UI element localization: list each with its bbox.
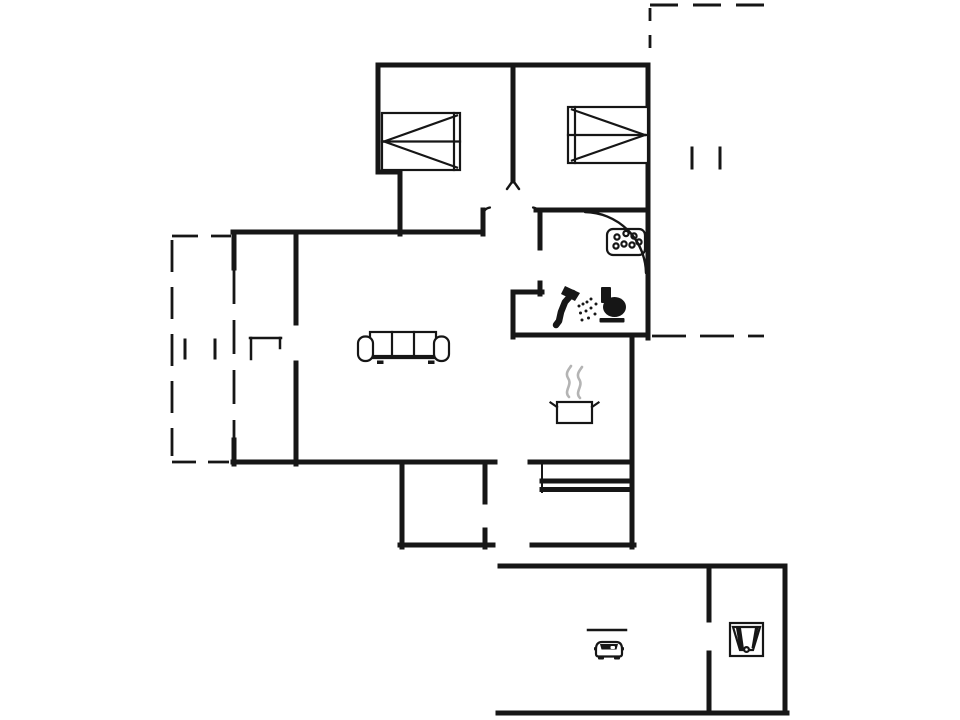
double-bed-left-icon <box>382 113 460 170</box>
floorplan-page <box>0 0 960 720</box>
car-icon <box>594 642 624 660</box>
floorplan-background <box>0 0 960 720</box>
utility-sink-icon <box>730 623 763 656</box>
double-bed-right-icon <box>568 107 648 163</box>
floorplan-canvas <box>0 0 960 720</box>
